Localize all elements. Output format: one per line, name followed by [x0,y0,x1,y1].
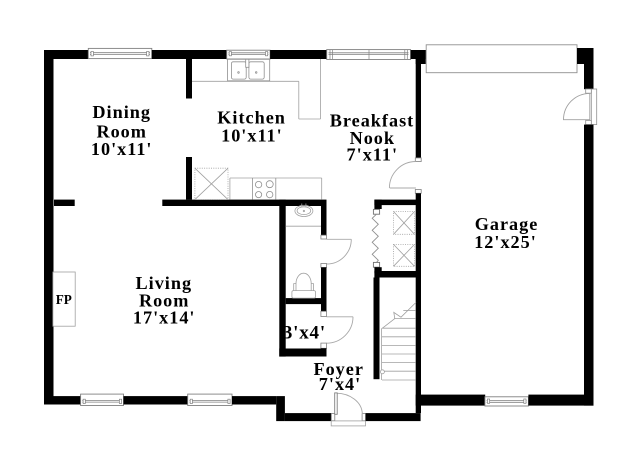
svg-text:12'x25': 12'x25' [474,232,537,252]
svg-text:10'x11': 10'x11' [221,125,283,145]
svg-text:7'x11': 7'x11' [347,145,398,165]
svg-text:FP: FP [56,292,72,307]
svg-text:Garage: Garage [475,214,539,234]
svg-text:10'x11': 10'x11' [91,139,153,159]
svg-text:17'x14': 17'x14' [133,307,196,327]
svg-text:7'x4': 7'x4' [319,374,361,394]
svg-text:3'x4': 3'x4' [283,323,326,344]
svg-text:Dining: Dining [92,102,151,122]
